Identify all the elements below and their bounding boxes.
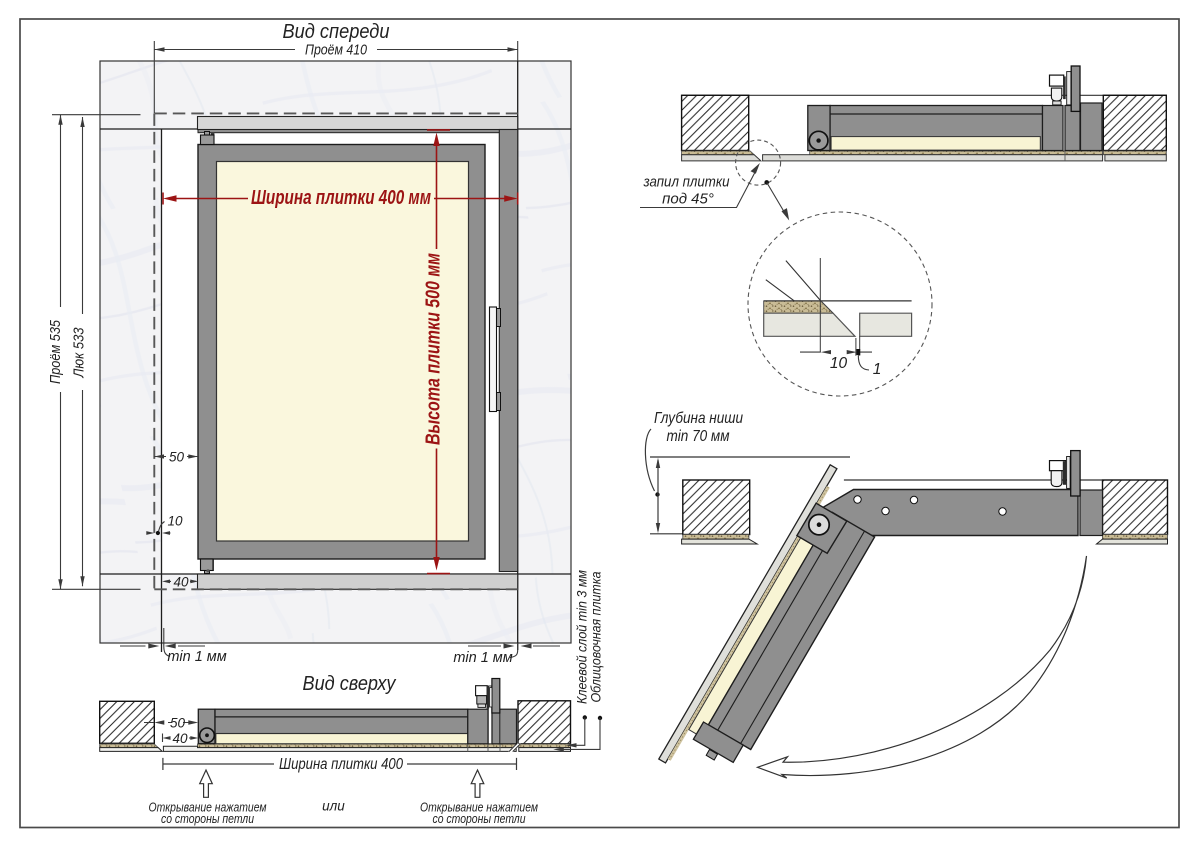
svg-text:40: 40 [172,731,188,746]
svg-text:10: 10 [167,514,183,529]
svg-text:со стороны петли: со стороны петли [433,812,526,826]
svg-text:Проём 535: Проём 535 [47,319,64,384]
svg-text:Глубина ниши: Глубина ниши [654,410,743,427]
svg-text:Высота плитки 500 мм: Высота плитки 500 мм [423,253,445,445]
svg-text:40: 40 [173,575,189,590]
svg-text:Облицовочная плитка: Облицовочная плитка [588,571,604,702]
svg-text:Вид спереди: Вид спереди [283,20,390,43]
svg-text:min 1 мм: min 1 мм [453,650,512,666]
svg-text:1: 1 [873,361,882,378]
svg-text:Ширина плитки 400: Ширина плитки 400 [279,756,403,773]
svg-text:min 1 мм: min 1 мм [167,649,226,665]
svg-text:запил плитки: запил плитки [643,174,730,191]
svg-text:Люк 533: Люк 533 [71,327,88,378]
svg-text:Проём 410: Проём 410 [305,42,368,59]
svg-text:или: или [322,799,345,814]
svg-text:50: 50 [169,450,185,465]
svg-text:Ширина плитки 400 мм: Ширина плитки 400 мм [251,187,431,209]
svg-text:50: 50 [170,716,186,731]
svg-text:со стороны петли: со стороны петли [161,812,254,826]
svg-text:под 45°: под 45° [662,191,714,208]
svg-text:10: 10 [830,355,848,372]
svg-text:Вид сверху: Вид сверху [303,672,398,695]
svg-text:min 70 мм: min 70 мм [667,428,730,445]
